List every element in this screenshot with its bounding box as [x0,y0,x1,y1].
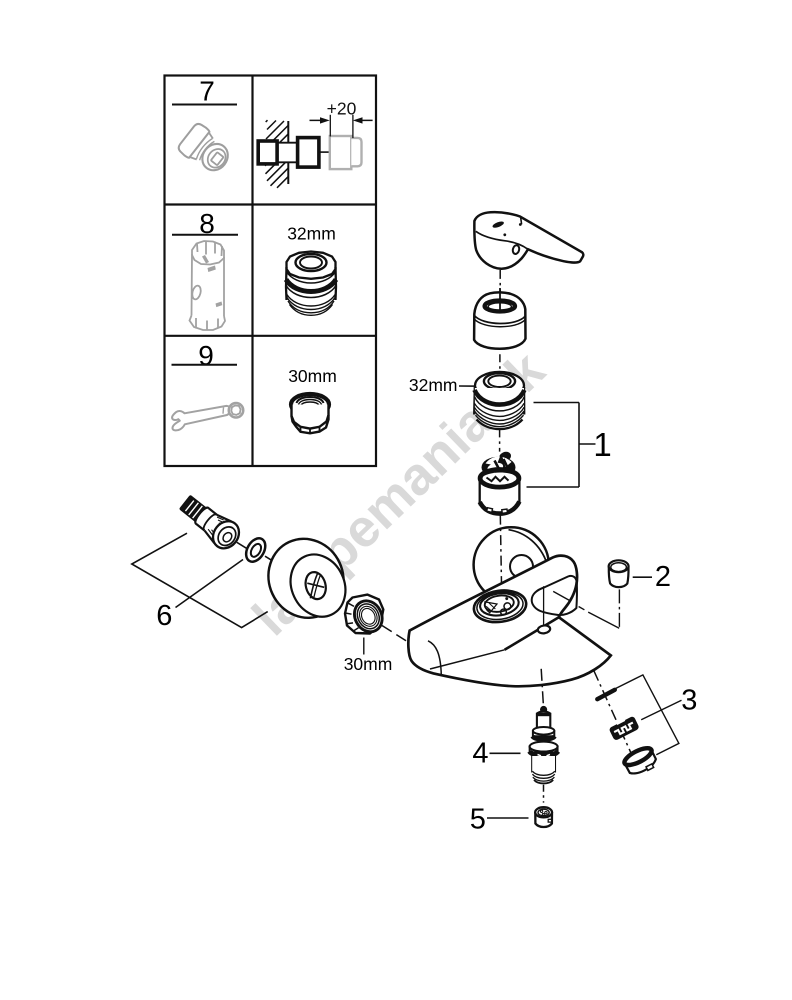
svg-text:32mm: 32mm [287,224,336,244]
svg-text:3: 3 [681,684,697,716]
svg-text:5: 5 [470,803,486,835]
svg-text:6: 6 [156,600,172,632]
svg-text:32mm: 32mm [409,375,458,395]
svg-text:1: 1 [593,426,611,463]
svg-text:9: 9 [198,340,214,371]
svg-text:2: 2 [655,561,671,593]
svg-text:+20: +20 [327,98,357,118]
svg-text:7: 7 [199,76,215,107]
svg-text:4: 4 [472,738,488,770]
svg-text:30mm: 30mm [344,654,393,674]
svg-text:30mm: 30mm [288,366,337,386]
